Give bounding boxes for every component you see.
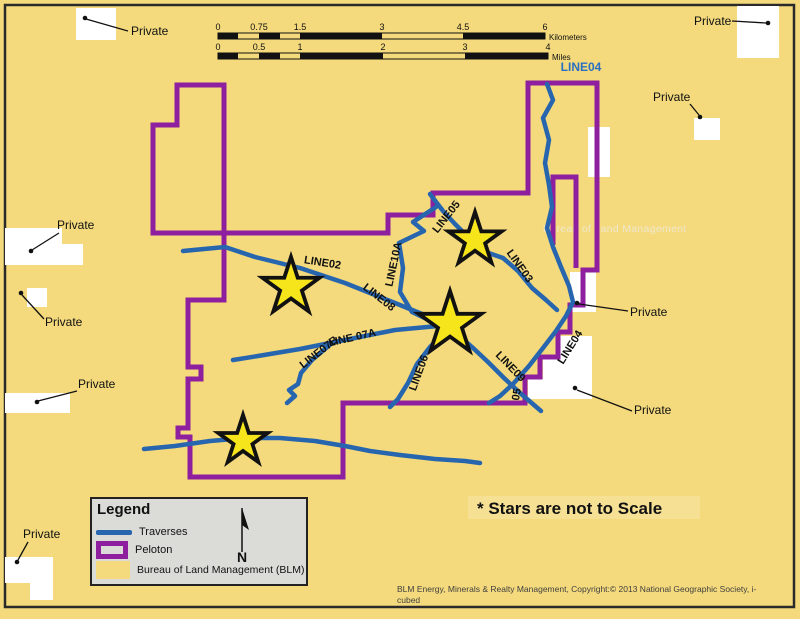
- legend-title: Legend: [97, 501, 306, 518]
- legend-item-label: Peloton: [135, 544, 172, 556]
- private-label: Private: [634, 403, 672, 417]
- km-tick-label: 0.75: [250, 22, 268, 32]
- map-page: Bureau of Land Management: [0, 0, 800, 619]
- legend: Legend Traverses Peloton Bureau of Land …: [90, 497, 308, 586]
- km-tick-label: 1.5: [294, 22, 307, 32]
- private-label: Private: [57, 218, 95, 232]
- leader-dot: [15, 560, 20, 565]
- private-label: Private: [45, 315, 83, 329]
- traverse-line-swatch: [96, 530, 132, 535]
- leader-dot: [83, 16, 88, 21]
- km-tick-label: 4.5: [457, 22, 470, 32]
- private-patch: [694, 118, 720, 140]
- mi-unit-label: Miles: [552, 53, 571, 62]
- private-patch: [5, 557, 53, 583]
- km-tick-label: 3: [379, 22, 384, 32]
- mi-tick-label: 4: [545, 42, 550, 52]
- private-label: Private: [694, 14, 732, 28]
- mi-tick-label: 1: [297, 42, 302, 52]
- mi-tick-label: 2: [380, 42, 385, 52]
- private-label: Private: [131, 24, 169, 38]
- mi-bar-segments: [218, 53, 548, 59]
- private-label: Private: [23, 527, 61, 541]
- leader-dot: [766, 21, 771, 26]
- legend-item-traverses: Traverses: [96, 526, 188, 538]
- attribution-line2: cubed: [397, 595, 420, 605]
- private-label: Private: [630, 305, 668, 319]
- peloton-outline-swatch: [96, 541, 128, 559]
- legend-item-label: Bureau of Land Management (BLM): [137, 564, 305, 576]
- line-label-line05-fragment: 05: [510, 387, 524, 401]
- leader-dot: [698, 115, 703, 120]
- leader-dot: [573, 386, 578, 391]
- mi-tick-label: 3: [462, 42, 467, 52]
- blm-fill-swatch: [96, 561, 130, 579]
- line-label-line04-top: LINE04: [561, 60, 602, 74]
- blm-watermark: Bureau of Land Management: [543, 223, 687, 235]
- km-bar-segments: [218, 33, 545, 39]
- private-label: Private: [78, 377, 116, 391]
- private-label: Private: [653, 90, 691, 104]
- stars-note: * Stars are not to Scale: [477, 499, 662, 518]
- leader-dot: [35, 400, 40, 405]
- km-tick-label: 6: [542, 22, 547, 32]
- legend-item-blm: Bureau of Land Management (BLM): [96, 561, 305, 579]
- private-patch: [76, 8, 116, 40]
- north-arrow-icon: N: [228, 504, 256, 566]
- north-label: N: [237, 549, 247, 565]
- private-patch: [30, 581, 53, 600]
- attribution-line1: BLM Energy, Minerals & Realty Management…: [397, 584, 757, 594]
- legend-item-label: Traverses: [139, 526, 188, 538]
- leader-dot: [19, 291, 24, 296]
- leader-dot: [575, 301, 580, 306]
- km-tick-label: 0: [215, 22, 220, 32]
- km-unit-label: Kilometers: [549, 33, 587, 42]
- private-patch: [737, 6, 779, 58]
- mi-tick-label: 0.5: [253, 42, 266, 52]
- mi-tick-label: 0: [215, 42, 220, 52]
- leader-dot: [29, 249, 34, 254]
- private-patch: [5, 244, 83, 265]
- legend-item-peloton: Peloton: [96, 541, 172, 559]
